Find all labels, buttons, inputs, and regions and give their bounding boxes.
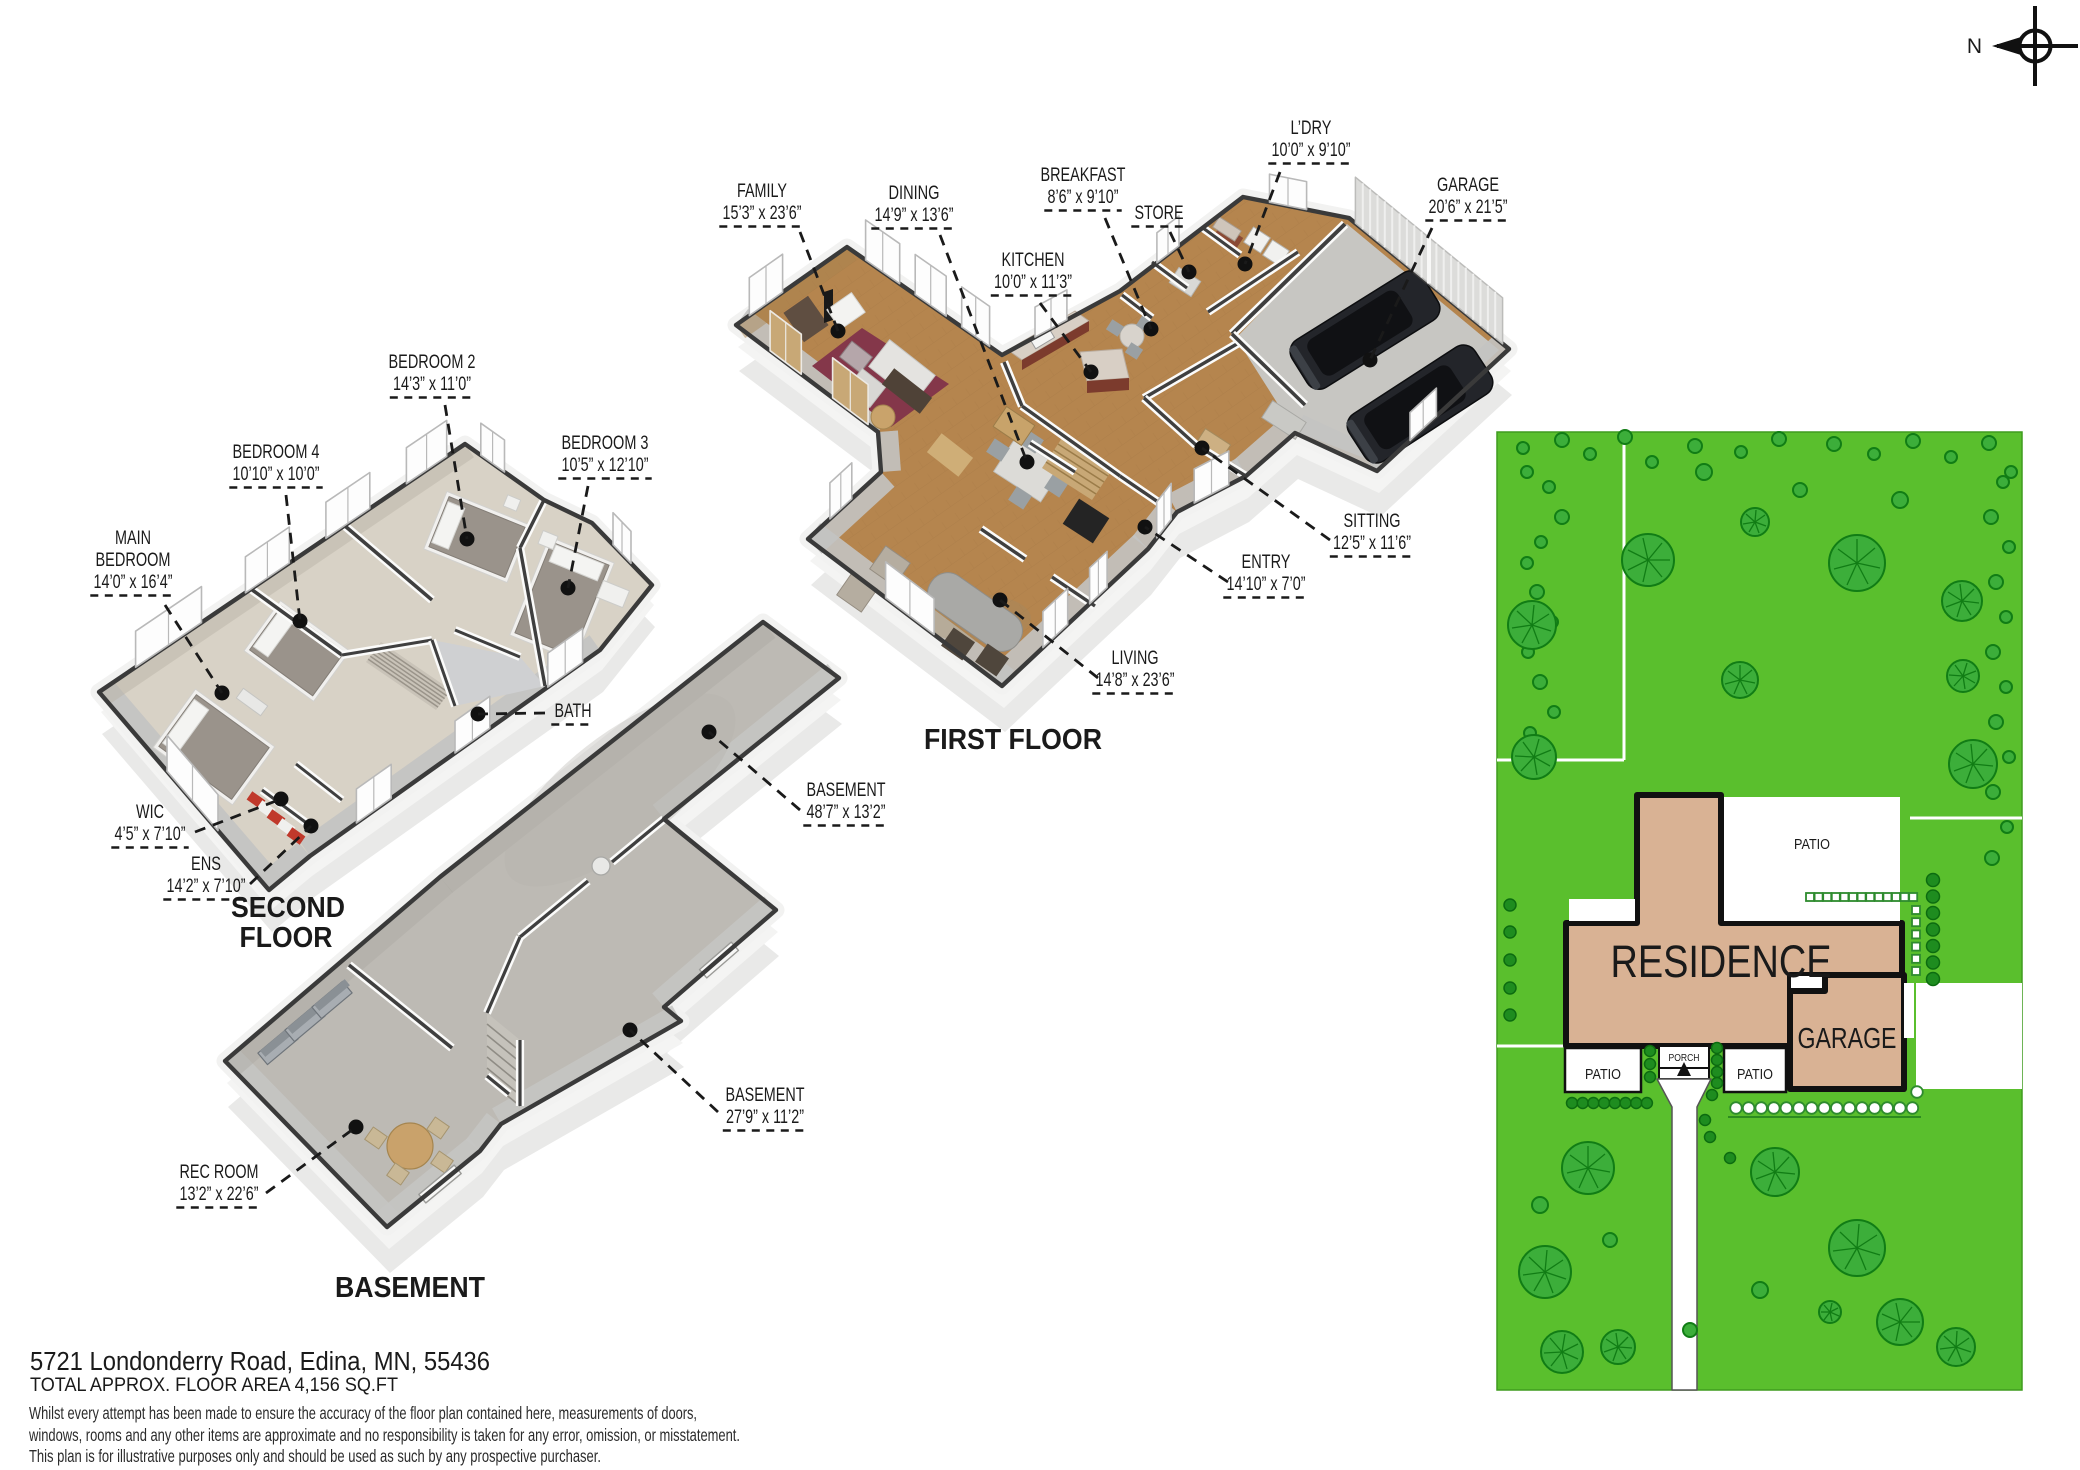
svg-text:5721 Londonderry Road, Edina,: 5721 Londonderry Road, Edina, MN, 55436	[30, 1348, 490, 1376]
svg-text:PATIO: PATIO	[1585, 1066, 1621, 1083]
svg-text:GARAGE: GARAGE	[1437, 174, 1499, 196]
svg-text:LIVING: LIVING	[1112, 647, 1159, 669]
svg-text:This plan is for illustrative: This plan is for illustrative purposes o…	[29, 1446, 601, 1466]
svg-text:48’7” x 13’2”: 48’7” x 13’2”	[807, 801, 886, 823]
svg-text:12’5” x 11’6”: 12’5” x 11’6”	[1333, 532, 1411, 554]
svg-text:10’5” x 12’10”: 10’5” x 12’10”	[562, 454, 649, 476]
svg-text:ENTRY: ENTRY	[1242, 551, 1291, 573]
svg-text:Whilst every attempt has been: Whilst every attempt has been made to en…	[29, 1403, 697, 1423]
svg-text:FLOOR: FLOOR	[240, 922, 333, 954]
svg-text:SITTING: SITTING	[1344, 510, 1401, 532]
svg-text:RESIDENCE: RESIDENCE	[1611, 936, 1832, 987]
svg-text:DINING: DINING	[889, 182, 940, 204]
svg-text:BASEMENT: BASEMENT	[807, 779, 886, 801]
svg-text:N: N	[1967, 35, 1982, 58]
svg-text:WIC: WIC	[136, 801, 164, 823]
svg-text:windows, rooms and any other i: windows, rooms and any other items are a…	[28, 1425, 740, 1445]
svg-text:4’5” x 7’10”: 4’5” x 7’10”	[115, 823, 186, 845]
svg-text:BEDROOM 2: BEDROOM 2	[389, 351, 476, 373]
svg-text:PATIO: PATIO	[1737, 1066, 1773, 1083]
svg-text:14’8” x 23’6”: 14’8” x 23’6”	[1096, 669, 1175, 691]
svg-text:REC ROOM: REC ROOM	[180, 1161, 259, 1183]
svg-text:10’0” x 9’10”: 10’0” x 9’10”	[1272, 139, 1351, 161]
svg-text:BREAKFAST: BREAKFAST	[1041, 164, 1126, 186]
svg-text:FAMILY: FAMILY	[737, 180, 787, 202]
svg-text:ENS: ENS	[191, 853, 221, 875]
svg-text:BASEMENT: BASEMENT	[335, 1272, 485, 1304]
svg-text:BEDROOM: BEDROOM	[96, 549, 171, 571]
svg-text:FIRST FLOOR: FIRST FLOOR	[924, 724, 1102, 756]
svg-text:STORE: STORE	[1135, 202, 1184, 224]
svg-text:BEDROOM 3: BEDROOM 3	[562, 432, 649, 454]
svg-text:10’10” x 10’0”: 10’10” x 10’0”	[233, 463, 320, 485]
svg-text:14’10” x 7’0”: 14’10” x 7’0”	[1227, 573, 1306, 595]
svg-text:14’3” x 11’0”: 14’3” x 11’0”	[393, 373, 471, 395]
svg-text:20’6” x 21’5”: 20’6” x 21’5”	[1429, 196, 1508, 218]
svg-text:8’6” x 9’10”: 8’6” x 9’10”	[1048, 186, 1119, 208]
svg-text:PATIO: PATIO	[1794, 836, 1830, 853]
svg-text:14’0” x 16’4”: 14’0” x 16’4”	[94, 571, 173, 593]
svg-text:GARAGE: GARAGE	[1798, 1023, 1897, 1055]
svg-text:15’3” x 23’6”: 15’3” x 23’6”	[723, 202, 802, 224]
svg-text:13’2” x 22’6”: 13’2” x 22’6”	[180, 1183, 259, 1205]
svg-text:14’9” x 13’6”: 14’9” x 13’6”	[875, 204, 954, 226]
svg-text:BASEMENT: BASEMENT	[726, 1084, 805, 1106]
svg-text:TOTAL APPROX. FLOOR AREA 4,156: TOTAL APPROX. FLOOR AREA 4,156 SQ.FT	[30, 1374, 398, 1396]
svg-text:BEDROOM 4: BEDROOM 4	[233, 441, 320, 463]
svg-text:BATH: BATH	[555, 700, 592, 722]
svg-text:MAIN: MAIN	[115, 527, 151, 549]
svg-text:10’0” x 11’3”: 10’0” x 11’3”	[994, 271, 1072, 293]
svg-text:SECOND: SECOND	[231, 892, 345, 924]
svg-text:L’DRY: L’DRY	[1291, 117, 1332, 139]
svg-text:27’9” x 11’2”: 27’9” x 11’2”	[726, 1106, 804, 1128]
svg-text:KITCHEN: KITCHEN	[1002, 249, 1065, 271]
